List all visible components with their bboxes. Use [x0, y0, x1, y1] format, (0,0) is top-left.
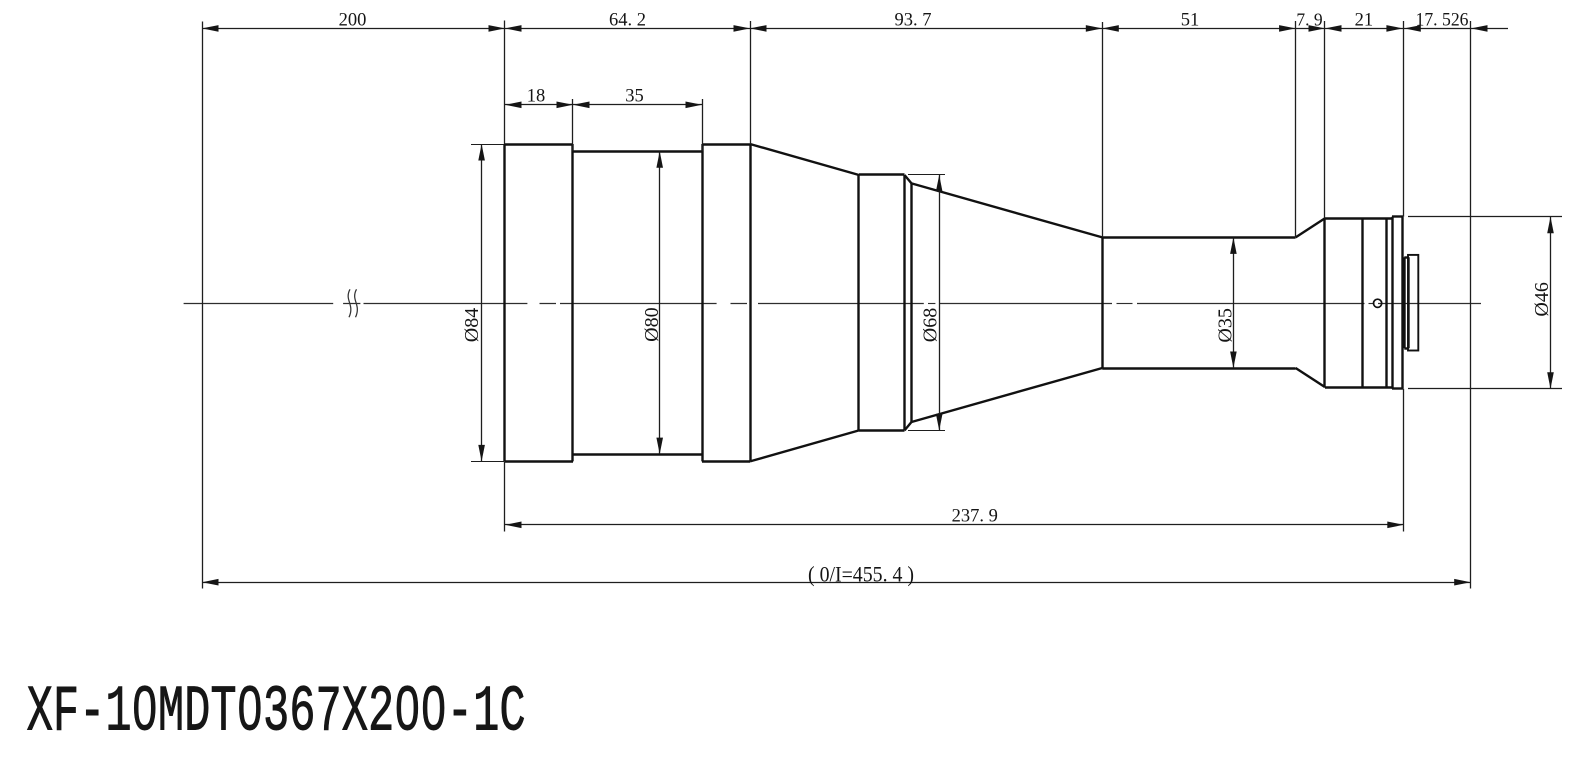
svg-text:Ø35: Ø35: [1215, 308, 1237, 342]
svg-text:7. 9: 7. 9: [1296, 10, 1323, 30]
svg-text:Ø68: Ø68: [920, 308, 942, 342]
svg-text:Ø84: Ø84: [461, 308, 483, 342]
svg-text:93. 7: 93. 7: [895, 11, 932, 31]
svg-text:( 0/I=455. 4 ): ( 0/I=455. 4 ): [808, 561, 914, 586]
svg-text:XF-10MDT0367X200-1C: XF-10MDT0367X200-1C: [27, 676, 526, 750]
svg-text:18: 18: [527, 87, 546, 107]
svg-text:Ø80: Ø80: [641, 307, 663, 341]
svg-text:51: 51: [1181, 11, 1200, 31]
svg-text:200: 200: [339, 11, 367, 31]
svg-text:Ø46: Ø46: [1531, 282, 1553, 316]
svg-text:35: 35: [625, 87, 644, 107]
svg-text:237. 9: 237. 9: [952, 506, 998, 526]
svg-text:21: 21: [1355, 11, 1374, 31]
svg-text:17. 526: 17. 526: [1416, 11, 1469, 31]
svg-text:64. 2: 64. 2: [609, 11, 646, 31]
